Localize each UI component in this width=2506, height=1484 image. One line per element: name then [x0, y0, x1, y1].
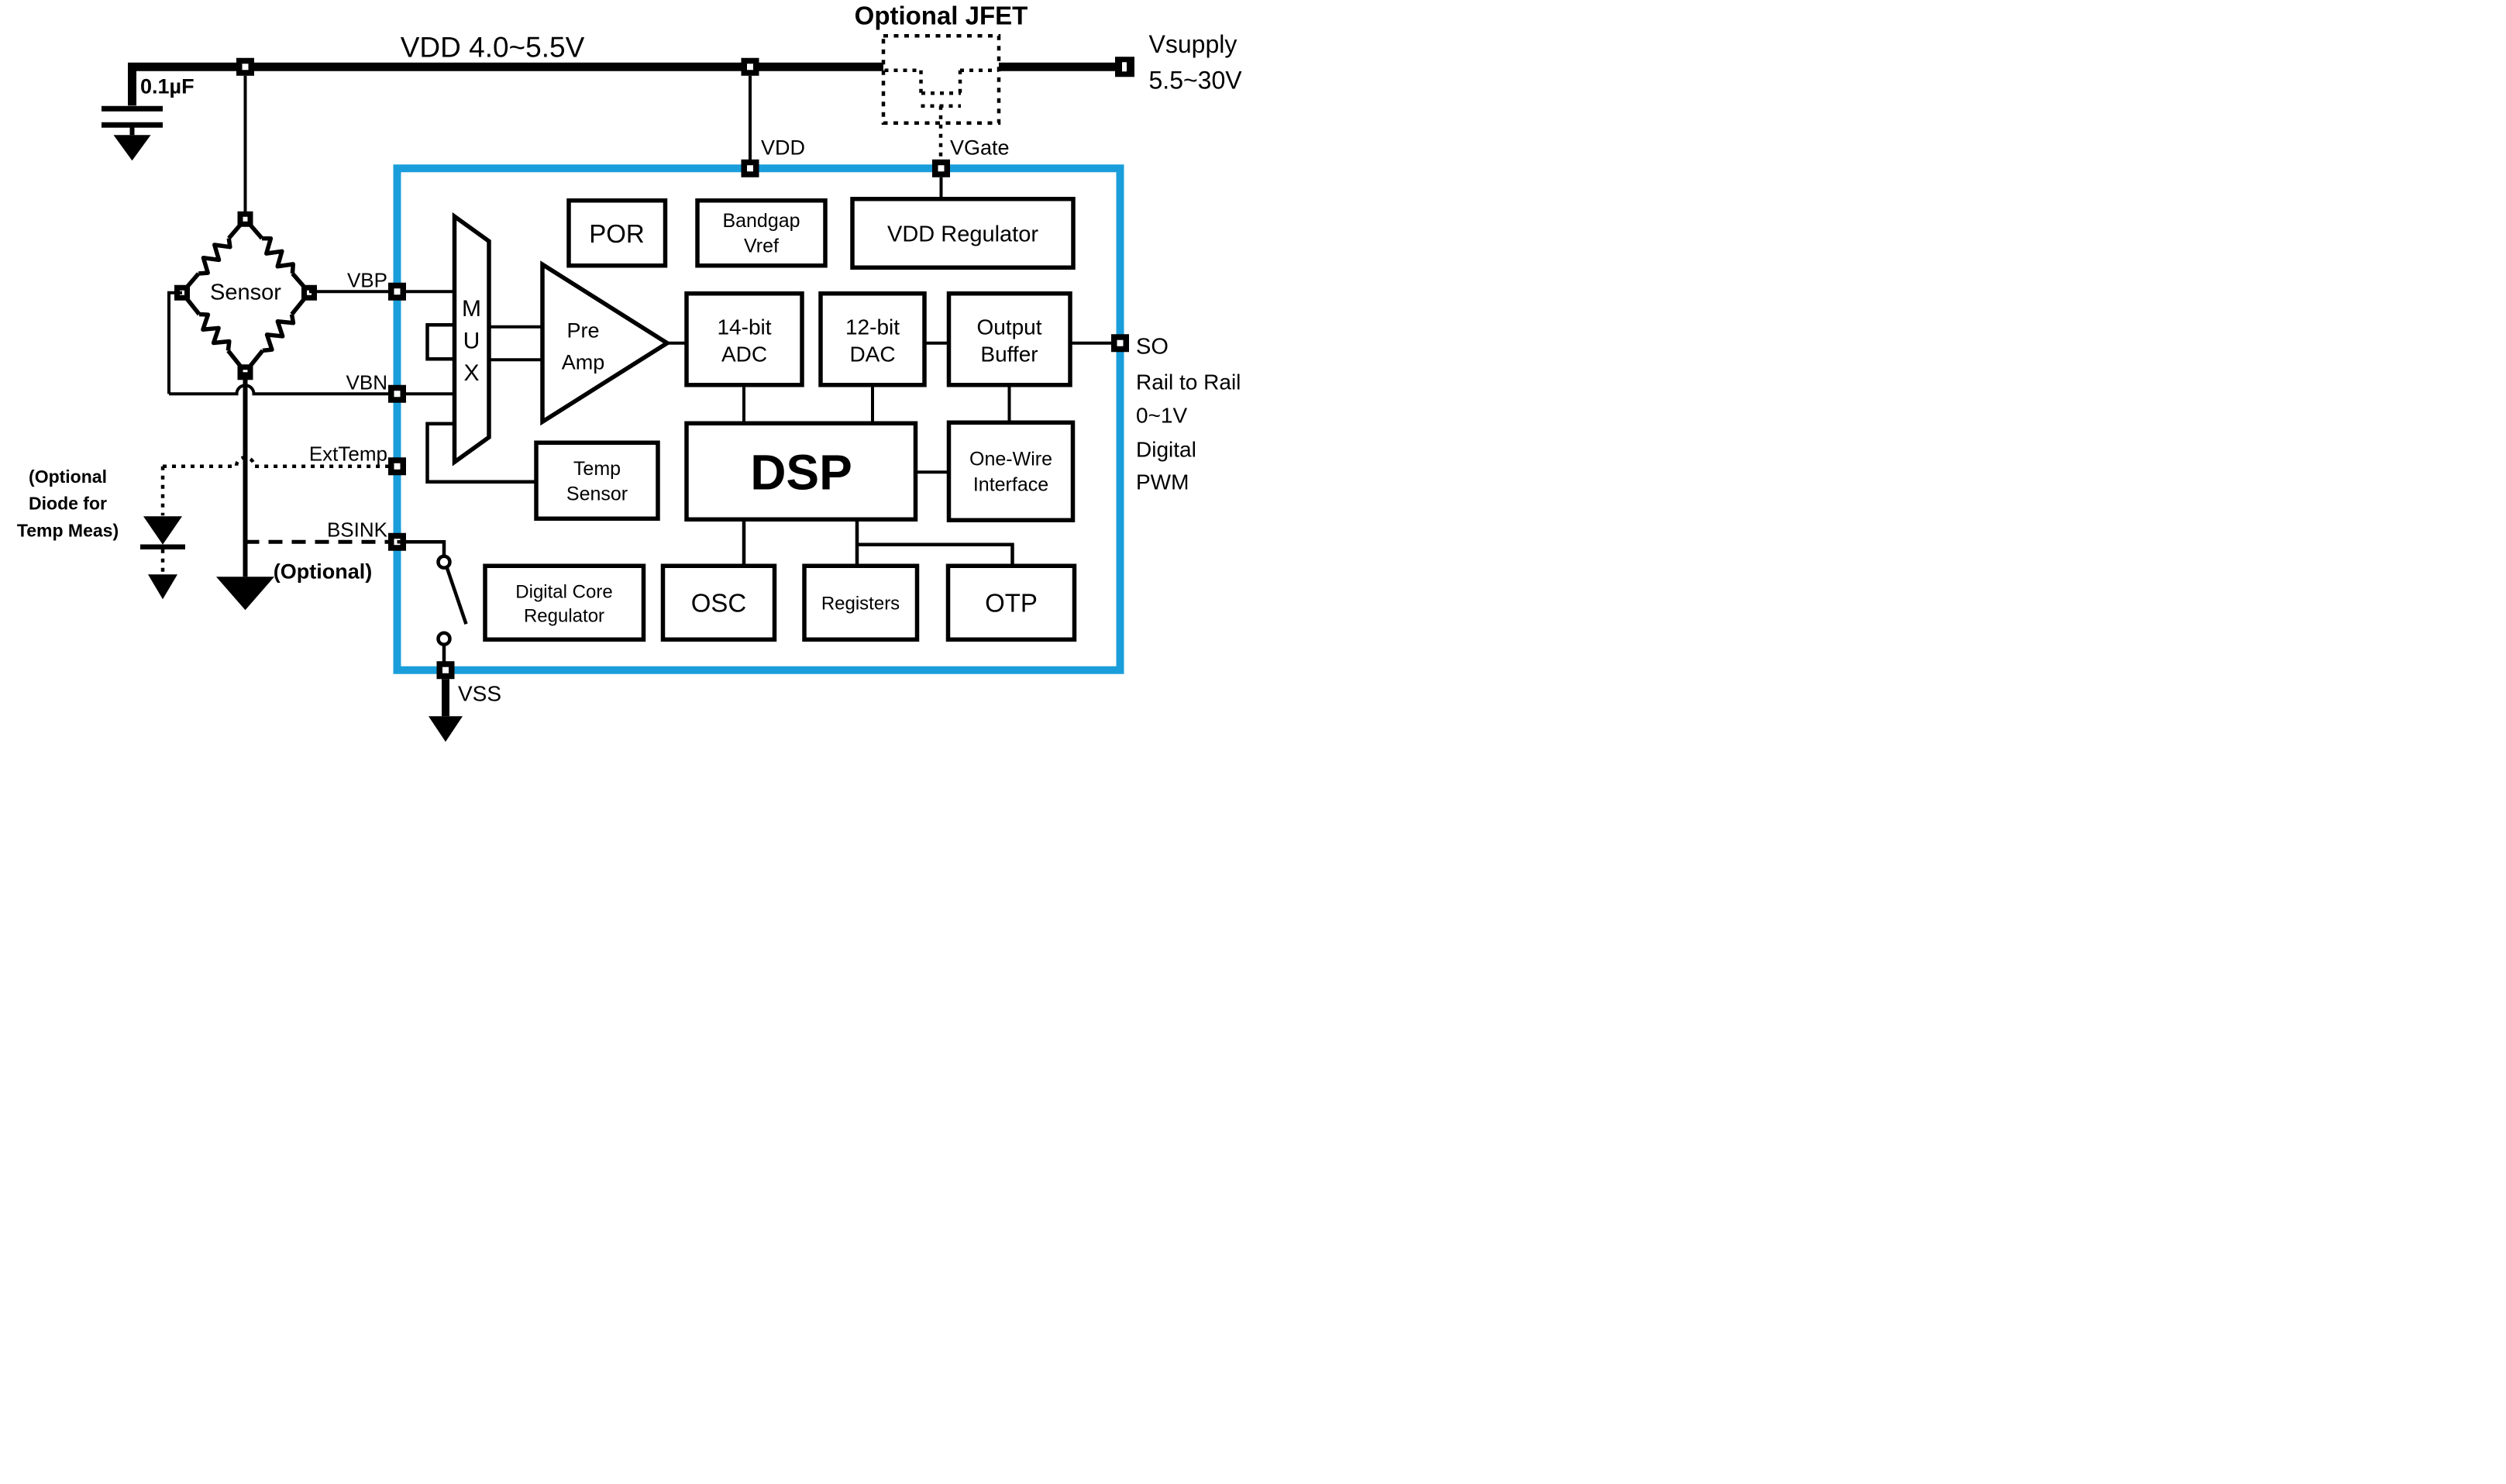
block-dac: 12-bit DAC — [821, 294, 924, 385]
vss-label: VSS — [458, 681, 501, 705]
sensor-rail-junction-pad — [236, 58, 254, 76]
bsink-label: BSINK — [327, 518, 388, 541]
so-label: SO — [1136, 334, 1169, 359]
block-mux: M U X — [455, 216, 490, 462]
block-dsp: DSP — [687, 423, 916, 519]
mux-input-loop-upper — [428, 325, 455, 359]
block-temp-sensor: Temp Sensor — [536, 442, 658, 518]
vdd-power-rail: VDD 4.0~5.5V — [128, 31, 1116, 105]
so-note-line5: PWM — [1136, 470, 1189, 494]
ground-arrow-icon — [114, 135, 151, 160]
vss-ground: VSS — [429, 679, 501, 742]
pad-exttemp — [388, 457, 406, 475]
sensor-label: Sensor — [210, 280, 281, 305]
capacitor-value-label: 0.1µF — [140, 74, 194, 98]
diode-icon — [143, 516, 182, 545]
block-vdd-regulator: VDD Regulator — [852, 199, 1073, 268]
jfet-dotted-box — [883, 36, 999, 123]
output-buffer-label-line2: Buffer — [980, 342, 1038, 366]
pad-vbp — [388, 283, 406, 301]
dac-label-line2: DAC — [849, 342, 895, 366]
one-wire-label-line2: Interface — [973, 473, 1048, 495]
otp-label: OTP — [985, 588, 1038, 617]
switch-contact-bottom — [439, 633, 450, 645]
vbn-label: VBN — [346, 370, 387, 394]
switch-contact-top — [439, 556, 450, 568]
por-label: POR — [589, 219, 645, 248]
block-otp: OTP — [948, 566, 1075, 639]
bridge-node-top — [238, 212, 253, 227]
block-por: POR — [569, 201, 666, 266]
vsupply-label-line2: 5.5~30V — [1149, 66, 1243, 94]
block-digital-core-regulator: Digital Core Regulator — [485, 566, 644, 639]
pad-vgate — [932, 160, 950, 177]
vgate-pin-label: VGate — [950, 136, 1010, 159]
temp-sensor-label-line1: Temp — [573, 458, 621, 480]
adc-label-line2: ADC — [721, 342, 767, 366]
temp-sensor-label-line2: Sensor — [566, 483, 628, 504]
dac-label-line1: 12-bit — [845, 315, 900, 339]
output-buffer-label-line1: Output — [976, 315, 1041, 339]
diode-note-line3: Temp Meas) — [17, 520, 119, 540]
bsink-optional-note: (Optional) — [274, 560, 372, 583]
dcr-label-line2: Regulator — [524, 605, 604, 626]
block-diagram-canvas: VDD 4.0~5.5V 0.1µF Optional JFET Vsupply… — [0, 0, 1253, 742]
mux-label-u: U — [463, 328, 480, 353]
diagram-stage: VDD 4.0~5.5V 0.1µF Optional JFET Vsupply… — [0, 0, 1253, 742]
vsupply-pad-hole — [1122, 62, 1127, 71]
vbn-loop-wire — [169, 293, 182, 394]
pad-vbn — [388, 385, 406, 403]
diode-note-line1: (Optional — [29, 467, 107, 487]
mux-label-x: X — [463, 360, 479, 386]
block-output-buffer: Output Buffer — [949, 294, 1071, 385]
optional-jfet-label: Optional JFET — [855, 1, 1028, 29]
diode-note-line2: Diode for — [29, 493, 107, 513]
dsp-label: DSP — [750, 444, 852, 500]
so-note-line4: Digital — [1136, 437, 1196, 461]
adc-label-line1: 14-bit — [717, 315, 771, 339]
vsupply-terminal: Vsupply 5.5~30V — [1115, 30, 1242, 95]
mux-label-m: M — [462, 296, 481, 322]
registers-label: Registers — [821, 593, 900, 614]
block-preamp: Pre Amp — [542, 264, 667, 422]
block-one-wire: One-Wire Interface — [949, 422, 1073, 520]
sensor-ground-arrow-icon — [216, 577, 274, 610]
block-registers: Registers — [804, 566, 917, 639]
vdd-pin-label: VDD — [761, 136, 805, 159]
so-note-line2: Rail to Rail — [1136, 370, 1241, 394]
osc-label: OSC — [691, 588, 747, 617]
vbn-wire — [169, 385, 455, 394]
vdd-regulator-label: VDD Regulator — [887, 222, 1038, 246]
block-osc: OSC — [663, 566, 775, 639]
switch-blade — [447, 567, 466, 625]
vsupply-label-line1: Vsupply — [1149, 30, 1238, 58]
dcr-label-line1: Digital Core — [515, 581, 612, 602]
bypass-capacitor: 0.1µF — [102, 74, 194, 160]
dsp-otp-bus-wire — [857, 545, 1013, 566]
exttemp-label: ExtTemp — [309, 442, 387, 465]
one-wire-label-line1: One-Wire — [969, 448, 1052, 470]
diode-ground-arrow-icon — [148, 574, 177, 599]
preamp-label-line1: Pre — [566, 318, 599, 342]
bandgap-label-line1: Bandgap — [722, 210, 800, 232]
pad-so — [1111, 334, 1129, 352]
vdd-rail-junction-pad — [742, 58, 759, 76]
vss-ground-arrow-icon — [429, 716, 463, 742]
bsink-switch — [398, 542, 466, 662]
sensor-bridge: Sensor — [174, 212, 317, 380]
pad-vss — [437, 661, 455, 679]
pad-vdd — [742, 160, 759, 177]
block-adc: 14-bit ADC — [687, 294, 802, 385]
vbp-label: VBP — [347, 268, 387, 291]
preamp-label-line2: Amp — [562, 350, 605, 374]
rail-voltage-label: VDD 4.0~5.5V — [401, 31, 585, 63]
bandgap-label-line2: Vref — [744, 235, 779, 257]
block-bandgap-vref: Bandgap Vref — [697, 201, 825, 266]
so-output-annotation: SO Rail to Rail 0~1V Digital PWM — [1136, 334, 1241, 494]
so-note-line3: 0~1V — [1136, 403, 1187, 427]
